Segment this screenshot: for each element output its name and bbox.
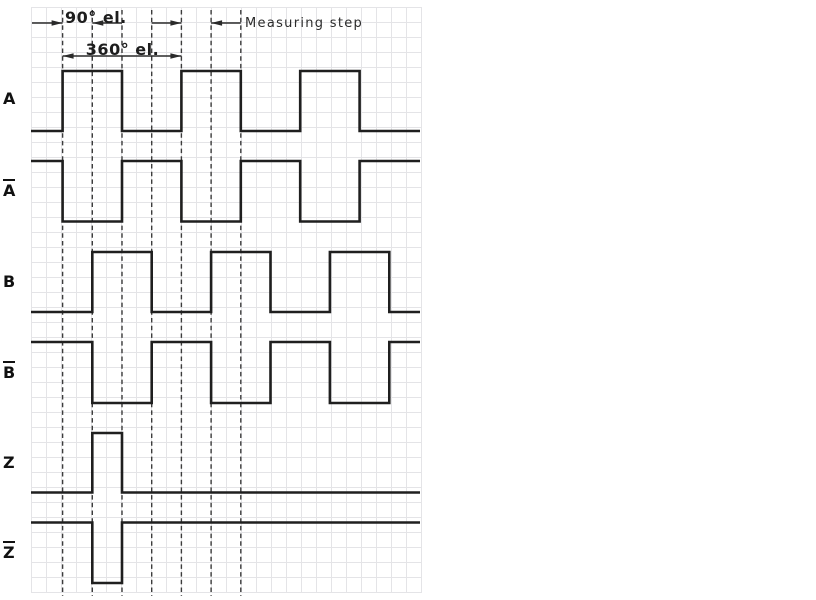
encoder-timing-diagram: A A B B Z Z 90° el. 360° el. Measuring s…	[0, 0, 816, 600]
dimension-arrowhead	[52, 20, 63, 25]
dimension-arrowhead	[170, 20, 181, 25]
measuring-step-label: Measuring step	[245, 17, 363, 30]
waveform-B-bar	[31, 342, 420, 403]
waveform-A	[31, 71, 420, 131]
signal-waveforms	[31, 71, 420, 583]
signal-label-z: Z	[3, 454, 15, 472]
waveform-A-bar	[31, 161, 420, 222]
signal-label-a-bar: A	[3, 179, 15, 200]
dimension-arrowhead	[211, 20, 222, 25]
signal-label-b-bar: B	[3, 361, 15, 382]
dimension-label-90deg: 90° el.	[65, 10, 127, 26]
signal-label-a: A	[3, 90, 15, 108]
timing-diagram-canvas	[0, 0, 816, 600]
waveform-Z	[31, 433, 420, 493]
waveform-Z-bar	[31, 523, 420, 584]
signal-label-b: B	[3, 273, 15, 291]
dimension-label-360deg: 360° el.	[63, 42, 182, 58]
signal-label-z-bar: Z	[3, 541, 15, 562]
waveform-B	[31, 252, 420, 312]
